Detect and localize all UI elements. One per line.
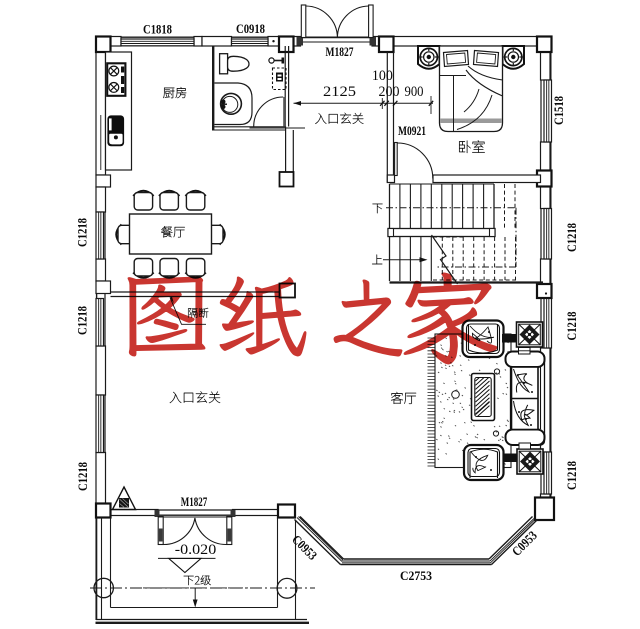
svg-text:C1218: C1218	[75, 218, 90, 247]
svg-text:200: 200	[379, 84, 400, 100]
svg-text:100: 100	[372, 68, 393, 84]
svg-text:C1218: C1218	[564, 311, 579, 340]
svg-text:C1218: C1218	[564, 461, 579, 490]
svg-text:C1218: C1218	[564, 223, 579, 252]
svg-text:C1218: C1218	[75, 462, 90, 491]
svg-text:C1818: C1818	[143, 22, 172, 37]
svg-text:C1518: C1518	[551, 96, 566, 125]
svg-text:C2753: C2753	[400, 568, 432, 583]
svg-text:C1218: C1218	[75, 306, 90, 335]
svg-text:C0918: C0918	[236, 21, 265, 36]
svg-text:M1827: M1827	[326, 44, 354, 59]
svg-text:M0921: M0921	[398, 123, 426, 138]
svg-text:M1827: M1827	[181, 494, 208, 509]
svg-text:2125: 2125	[323, 84, 356, 100]
svg-text:900: 900	[405, 84, 424, 100]
svg-text:-0.020: -0.020	[175, 542, 217, 558]
